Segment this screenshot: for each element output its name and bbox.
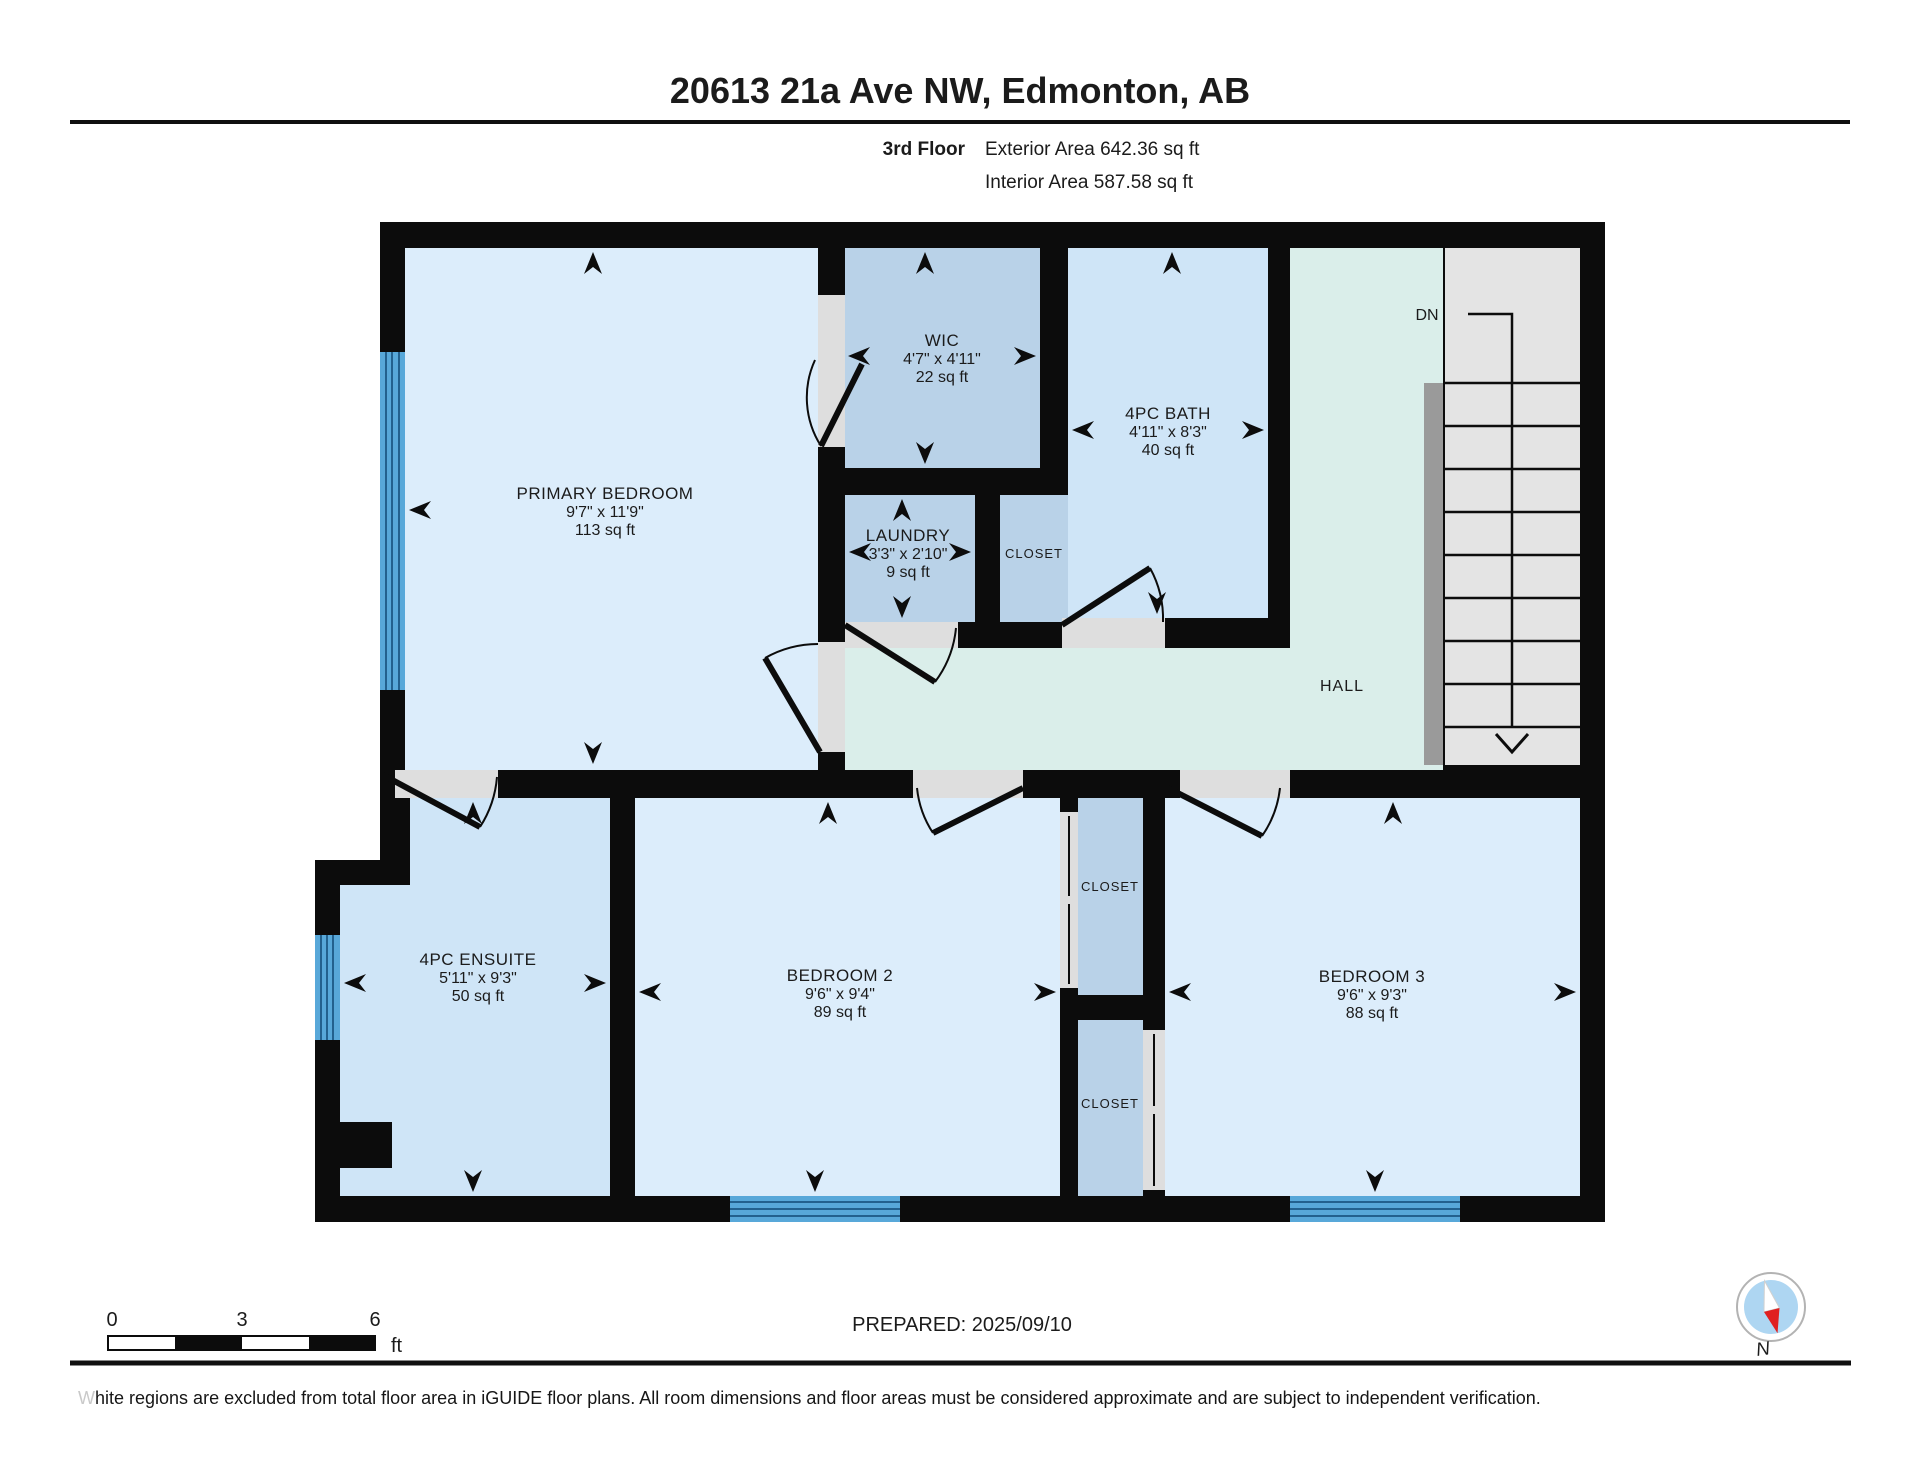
scale-zero: 0 [106, 1309, 117, 1331]
window [1290, 1196, 1460, 1222]
room-area: 89 sq ft [814, 1004, 867, 1021]
floor-plan-canvas: 20613 21a Ave NW, Edmonton, AB 3rd Floor… [0, 0, 1920, 1484]
page-title: 20613 21a Ave NW, Edmonton, AB [670, 70, 1250, 111]
header: 20613 21a Ave NW, Edmonton, AB 3rd Floor… [70, 70, 1850, 193]
room-label: BEDROOM 3 [1319, 967, 1426, 986]
scale-unit: ft [391, 1335, 403, 1357]
room-label: 4PC BATH [1125, 404, 1211, 423]
scale-end: 6 [369, 1309, 380, 1331]
room-dims: 4'11" x 8'3" [1129, 424, 1207, 441]
room-dims: 4'7" x 4'11" [903, 351, 981, 368]
closet-label: CLOSET [1081, 1096, 1139, 1111]
room-dims: 5'11" x 9'3" [439, 970, 517, 987]
scale-mid: 3 [236, 1309, 247, 1331]
room-hall-arm [1290, 248, 1443, 770]
room-area: 9 sq ft [886, 564, 930, 581]
floor-plan: PRIMARY BEDROOM 9'7" x 11'9" 113 sq ft W… [315, 222, 1605, 1222]
room-area: 22 sq ft [916, 369, 969, 386]
window [380, 352, 405, 690]
room-label: BEDROOM 2 [787, 966, 894, 985]
room-dims: 9'6" x 9'3" [1337, 987, 1407, 1004]
stair-handrail [1424, 383, 1443, 765]
room-label: WIC [925, 331, 960, 350]
room-area: 50 sq ft [452, 988, 505, 1005]
stairs-down-label: DN [1415, 307, 1438, 324]
room-label: LAUNDRY [866, 526, 950, 545]
prepared-date: PREPARED: 2025/09/10 [852, 1314, 1072, 1336]
closet-label: CLOSET [1081, 879, 1139, 894]
compass-icon: N [1737, 1273, 1805, 1361]
floor-plan-page: 20613 21a Ave NW, Edmonton, AB 3rd Floor… [0, 0, 1920, 1484]
interior-area-label: Interior Area 587.58 sq ft [985, 172, 1194, 193]
window [730, 1196, 900, 1222]
closet-label: CLOSET [1005, 546, 1063, 561]
room-dims: 3'3" x 2'10" [869, 546, 948, 563]
floor-label: 3rd Floor [883, 139, 966, 160]
room-label: 4PC ENSUITE [420, 950, 537, 969]
exterior-area-label: Exterior Area 642.36 sq ft [985, 139, 1200, 160]
room-area: 40 sq ft [1142, 442, 1195, 459]
wall-notch [340, 1122, 392, 1168]
disclaimer-text: White regions are excluded from total fl… [78, 1388, 1541, 1408]
room-area: 113 sq ft [575, 522, 636, 539]
room-closet-top [1078, 798, 1143, 995]
room-label: PRIMARY BEDROOM [517, 484, 694, 503]
room-dims: 9'7" x 11'9" [566, 504, 644, 521]
hall-label: HALL [1320, 678, 1364, 695]
room-dims: 9'6" x 9'4" [805, 986, 875, 1003]
window [315, 935, 340, 1040]
room-area: 88 sq ft [1346, 1005, 1399, 1022]
scale-bar: 0 3 6 ft [106, 1309, 402, 1357]
